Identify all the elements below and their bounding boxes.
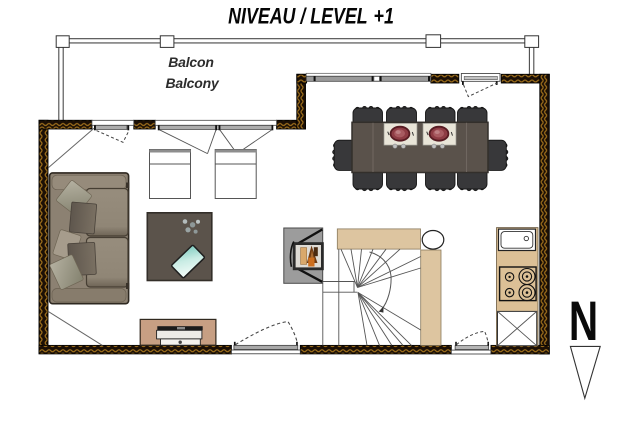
svg-text:N: N: [569, 291, 598, 353]
svg-text:Balcony: Balcony: [165, 75, 219, 91]
svg-text:Balcon: Balcon: [168, 54, 213, 70]
svg-text:NIVEAU / LEVEL +1: NIVEAU / LEVEL +1: [228, 5, 394, 29]
